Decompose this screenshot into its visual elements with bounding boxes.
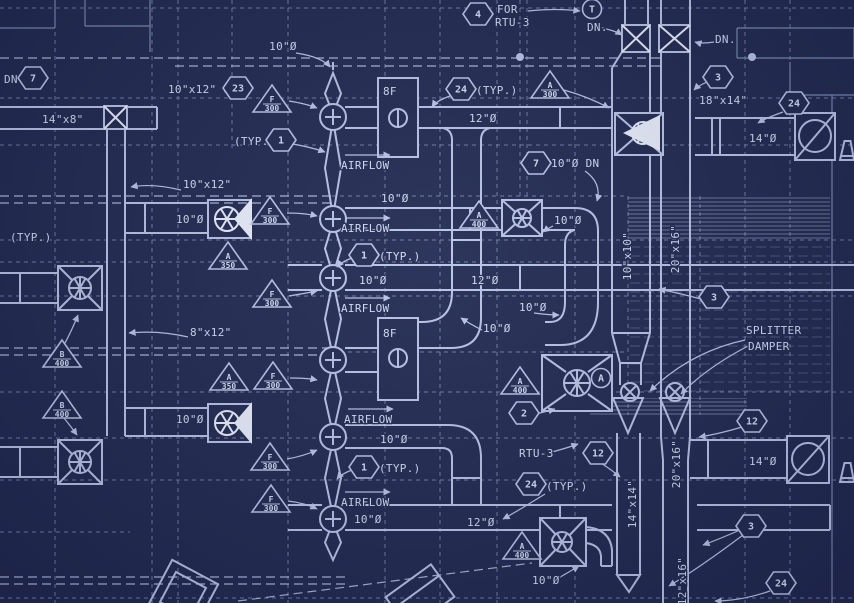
text-label: 10"Ø — [354, 513, 382, 526]
text-label: (TYP.) — [10, 231, 52, 244]
hexagon-keynote-tag: 1 — [266, 129, 296, 151]
text-label: RTU-3 — [519, 447, 554, 460]
text-label: AIRFLOW — [341, 159, 390, 172]
diffuser-cfm-value: 300 — [265, 299, 280, 308]
text-label: 18"x14" — [699, 94, 747, 107]
hexagon-number: 24 — [525, 480, 537, 491]
hexagon-keynote-tag: 3 — [736, 515, 766, 537]
diffuser-cfm-value: 400 — [55, 410, 70, 419]
hvac-plan-drawing: 10"ØDN14"x8"10"x12" UP(TYP.)10"x12"10"Ø(… — [0, 0, 854, 603]
diffuser-cfm-value: 400 — [513, 386, 528, 395]
hexagon-number: 1 — [361, 251, 367, 262]
hexagon-number: 24 — [455, 85, 467, 96]
hexagon-number: 1 — [361, 463, 367, 474]
hexagon-keynote-tag: 24 — [516, 473, 546, 495]
diffuser-type-letter: F — [269, 495, 274, 504]
duct-size-label-vertical: 20"x16" — [670, 440, 683, 488]
hexagon-keynote-tag: 7 — [18, 67, 48, 89]
text-label: 10"Ø — [532, 574, 560, 587]
hexagon-number: 4 — [475, 10, 481, 21]
text-label: 12"Ø — [469, 112, 497, 125]
text-label: 14"x8" — [42, 113, 84, 126]
hexagon-keynote-tag: 3 — [699, 286, 729, 308]
hexagon-number: 3 — [748, 522, 754, 533]
text-label: 10"Ø — [359, 274, 387, 287]
diffuser-cfm-value: 400 — [55, 359, 70, 368]
text-label: 10"Ø — [269, 40, 297, 53]
diffuser-type-letter: A — [520, 542, 525, 551]
text-label: 8F — [383, 85, 397, 98]
text-label: (TYP.) — [476, 84, 518, 97]
hexagon-keynote-tag: 12 — [583, 442, 613, 464]
hexagon-keynote-tag: 23 — [223, 77, 253, 99]
text-label: (TYP.) — [379, 462, 421, 475]
hexagon-number: 24 — [775, 579, 787, 590]
text-label: AIRFLOW — [341, 496, 390, 509]
text-label: 10"Ø — [176, 413, 204, 426]
diffuser-type-letter: A — [477, 211, 482, 220]
text-label: 10"Ø — [176, 213, 204, 226]
hexagon-keynote-tag: 7 — [521, 152, 551, 174]
diffuser-cfm-value: 350 — [221, 261, 236, 270]
hexagon-keynote-tag: 1 — [349, 456, 379, 478]
diffuser-type-letter: F — [268, 207, 273, 216]
text-label: AIRFLOW — [341, 222, 390, 235]
diffuser-type-letter: F — [271, 372, 276, 381]
diffuser-cfm-value: 300 — [263, 216, 278, 225]
diffuser-type-letter: F — [268, 453, 273, 462]
blueprint-sheet: 10"ØDN14"x8"10"x12" UP(TYP.)10"x12"10"Ø(… — [0, 0, 854, 603]
diffuser-cfm-value: 300 — [266, 381, 281, 390]
text-label: RTU-3 — [495, 16, 530, 29]
circle-tag-letter: A — [598, 374, 604, 385]
text-label: 8F — [383, 327, 397, 340]
hexagon-keynote-tag: 24 — [766, 572, 796, 594]
hexagon-keynote-tag: 12 — [737, 410, 767, 432]
diffuser-cfm-value: 300 — [263, 462, 278, 471]
duct-size-label-vertical: 12"x16" — [676, 557, 689, 603]
text-label: DN — [4, 73, 18, 86]
text-label: 12"Ø — [467, 516, 495, 529]
hexagon-number: 1 — [278, 136, 284, 147]
text-label: 10"Ø — [519, 301, 547, 314]
text-label: AIRFLOW — [344, 413, 393, 426]
diffuser-type-letter: F — [270, 290, 275, 299]
diffuser-cfm-value: 400 — [515, 551, 530, 560]
diffuser-cfm-value: 300 — [264, 504, 279, 513]
hexagon-keynote-tag: 1 — [349, 244, 379, 266]
text-label: DAMPER — [748, 340, 790, 353]
hexagon-number: 23 — [232, 84, 244, 95]
text-label: (TYP.) — [546, 480, 588, 493]
diffuser-type-letter: A — [227, 373, 232, 382]
hexagon-keynote-tag: 24 — [446, 78, 476, 100]
hexagon-keynote-tag: 24 — [779, 92, 809, 114]
text-label: 10"Ø — [381, 192, 409, 205]
text-label: AIRFLOW — [341, 302, 390, 315]
text-label: 10"Ø — [483, 322, 511, 335]
diffuser-type-letter: B — [60, 401, 65, 410]
text-label: FOR — [497, 3, 518, 16]
text-label: 8"x12" — [190, 326, 232, 339]
diffuser-cfm-value: 350 — [222, 382, 237, 391]
duct-size-label-vertical: 14"x14" — [626, 480, 639, 528]
text-label: 12"Ø — [471, 274, 499, 287]
hexagon-keynote-tag: 4 — [463, 3, 493, 25]
text-label: (TYP.) — [379, 250, 421, 263]
text-label: DN. — [715, 33, 736, 46]
duct-size-label-vertical: 10"x10" — [621, 232, 634, 280]
text-label: 10"Ø — [380, 433, 408, 446]
diffuser-cfm-value: 300 — [543, 90, 558, 99]
diffuser-type-letter: A — [226, 252, 231, 261]
text-label: DN. — [587, 21, 608, 34]
text-label: 10"x12" — [183, 178, 231, 191]
hexagon-keynote-tag: 3 — [703, 66, 733, 88]
diffuser-cfm-value: 300 — [265, 104, 280, 113]
circle-tag: A — [592, 369, 611, 388]
hexagon-number: 7 — [30, 74, 36, 85]
hexagon-number: 3 — [715, 73, 721, 84]
text-label: SPLITTER — [746, 324, 801, 337]
diffuser-type-letter: A — [518, 377, 523, 386]
circle-tag: T — [583, 0, 602, 19]
text-label: 10"Ø DN — [551, 157, 599, 170]
diffuser-cfm-value: 400 — [472, 220, 487, 229]
hexagon-number: 24 — [788, 99, 800, 110]
text-label: 14"Ø — [749, 132, 777, 145]
diffuser-type-letter: F — [270, 95, 275, 104]
hexagon-number: 7 — [533, 159, 539, 170]
duct-size-label-vertical: 20"x16" — [669, 225, 682, 273]
text-label: 10"Ø — [554, 214, 582, 227]
hexagon-number: 12 — [592, 449, 604, 460]
hexagon-number: 12 — [746, 417, 758, 428]
hexagon-number: 2 — [521, 409, 527, 420]
hexagon-keynote-tag: 2 — [509, 402, 539, 424]
text-label: 14"Ø — [749, 455, 777, 468]
diffuser-type-letter: B — [60, 350, 65, 359]
circle-tag-letter: T — [589, 5, 595, 16]
diffuser-type-letter: A — [548, 81, 553, 90]
hexagon-number: 3 — [711, 293, 717, 304]
